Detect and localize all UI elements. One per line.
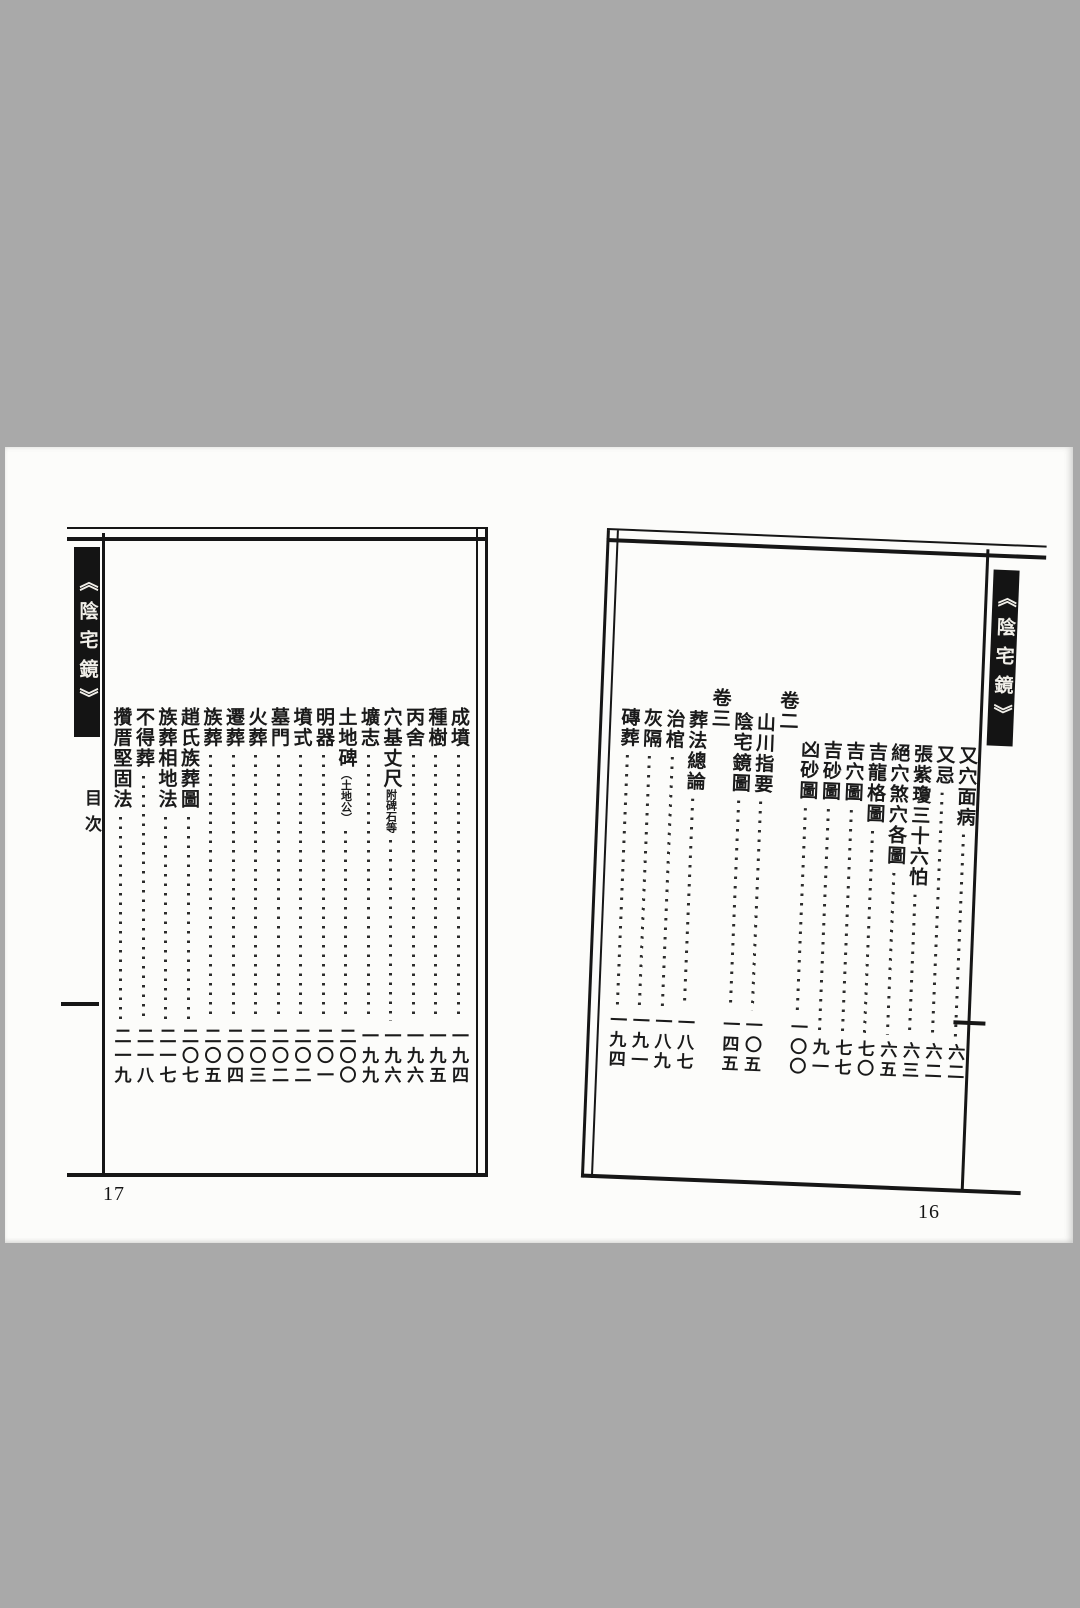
dotted-leader xyxy=(367,755,370,1021)
toc-entry-page: 二〇二 xyxy=(291,1027,311,1086)
toc-entry-page: 一九六 xyxy=(403,1027,423,1086)
toc-entry-title: 治棺 xyxy=(661,708,685,750)
toc-entry-title: 攢厝堅固法 xyxy=(110,707,132,810)
toc-entry-title: 山川指要 xyxy=(750,712,775,795)
toc-entry-title: 種樹 xyxy=(425,707,447,748)
toc-entry-page: 九一 xyxy=(808,1038,830,1078)
toc-entry-page: 二〇五 xyxy=(201,1027,221,1086)
toc-entry-page: 六二 xyxy=(943,1043,965,1083)
toc-entry-title: 明器 xyxy=(312,707,334,748)
toc-entry-page: 一九四 xyxy=(448,1027,468,1086)
toc-entry-page: 二一九 xyxy=(111,1027,131,1086)
toc-entry-page: 一九九 xyxy=(358,1027,378,1086)
dotted-leader xyxy=(638,756,651,1005)
toc-entry-note: 附碑石等 xyxy=(385,789,397,833)
dotted-leader xyxy=(728,800,739,1008)
toc-entry: 火葬二〇三 xyxy=(245,707,267,1085)
toc-entry-page: 二〇〇 xyxy=(336,1027,356,1086)
toc-entry-page: 二〇七 xyxy=(178,1027,198,1086)
toc-entry-title: 磚葬 xyxy=(616,707,640,749)
dotted-leader xyxy=(796,808,807,1012)
printed-page-number-right: 16 xyxy=(918,1201,940,1224)
page-frame-bottom-border xyxy=(67,1173,488,1177)
toc-entry: 族葬相地法二一七 xyxy=(155,707,177,1085)
dotted-leader xyxy=(142,776,145,1021)
toc-entry-page: 一九五 xyxy=(426,1027,446,1086)
toc-entry-title: 成墳 xyxy=(447,707,469,748)
book-title-strip: 《陰宅鏡》 xyxy=(987,570,1020,747)
toc-entry-title: 又忌 xyxy=(931,744,955,786)
book-title-strip: 《陰宅鏡》 xyxy=(74,547,100,737)
dotted-leader xyxy=(299,755,302,1021)
toc-entry: 遷葬二〇四 xyxy=(222,707,244,1085)
page-frame-top-border xyxy=(606,528,1046,560)
toc-entry-title: 卷二 xyxy=(775,690,799,732)
dotted-leader xyxy=(119,817,122,1021)
toc-entry-page: 六三 xyxy=(898,1041,920,1081)
toc-section-header: 卷二 xyxy=(775,690,799,732)
dotted-leader xyxy=(187,817,190,1021)
dotted-leader xyxy=(751,801,762,1009)
toc-entry-title: 趙氏族葬圖 xyxy=(177,707,199,810)
toc-entry-page: 一八七 xyxy=(672,1013,694,1072)
toc-entry-title: 墳式 xyxy=(290,707,312,748)
book-page-left: 《陰宅鏡》 目次 成墳一九四種樹一九五丙舍一九六穴基丈尺附碑石等一九六壙志一九九… xyxy=(67,527,488,1179)
toc-entry-page: 二〇三 xyxy=(246,1027,266,1086)
dotted-leader xyxy=(412,755,415,1021)
toc-entry-title: 土地碑（土地公） xyxy=(335,707,357,824)
dotted-leader xyxy=(615,755,628,1004)
toc-entry-title: 吉龍格圖 xyxy=(862,742,887,825)
toc-entry: 攢厝堅固法二一九 xyxy=(110,707,132,1085)
margin-notch xyxy=(61,1002,99,1006)
toc-entry: 族葬二〇五 xyxy=(200,707,222,1085)
toc-entry-page: 七七 xyxy=(830,1038,852,1078)
toc-entry-title: 墓門 xyxy=(267,707,289,748)
toc-entry-title: 族葬相地法 xyxy=(155,707,177,810)
dotted-leader xyxy=(164,817,167,1021)
toc-entry-title: 又穴面病 xyxy=(952,745,977,828)
page-frame-right-border xyxy=(476,529,488,1177)
toc-entry-page: 六五 xyxy=(875,1040,897,1080)
toc-entry-title: 灰隔 xyxy=(639,707,663,749)
dotted-leader xyxy=(683,799,694,1007)
toc-entry-page: 一四五 xyxy=(717,1014,739,1073)
toc-entry-page: 一九四 xyxy=(604,1010,626,1069)
toc-entry-page: 七〇 xyxy=(853,1039,875,1079)
toc-entry-title: 丙舍 xyxy=(402,707,424,748)
toc-entry-title: 凶砂圖 xyxy=(795,739,819,801)
page-frame-top-border xyxy=(67,527,488,541)
dotted-leader xyxy=(434,755,437,1021)
toc-entry-title: 壙志 xyxy=(357,707,379,748)
dotted-leader xyxy=(840,809,852,1032)
page-frame-inner-left-border xyxy=(102,533,105,1175)
dotted-leader xyxy=(254,755,257,1021)
toc-entry: 明器二〇一 xyxy=(312,707,334,1085)
toc-entry-title: 卷三 xyxy=(707,687,731,729)
toc-entry-note: （土地公） xyxy=(340,769,352,824)
dotted-leader xyxy=(457,755,460,1021)
toc-heading: 目次 xyxy=(79,789,104,841)
dotted-leader xyxy=(908,894,917,1036)
toc-entry-page: 二一八 xyxy=(133,1027,153,1086)
toc-entry-page: 一〇〇 xyxy=(785,1017,807,1076)
dotted-leader xyxy=(931,793,944,1037)
dotted-leader xyxy=(863,831,874,1034)
dotted-leader xyxy=(661,757,674,1006)
dotted-leader xyxy=(277,755,280,1021)
dotted-leader xyxy=(953,834,964,1037)
toc-entry-title: 穴基丈尺附碑石等 xyxy=(380,707,402,833)
toc-entry: 趙氏族葬圖二〇七 xyxy=(177,707,199,1085)
toc-entry-page: 一〇五 xyxy=(740,1015,762,1074)
toc-entry: 墳式二〇二 xyxy=(290,707,312,1085)
toc-entry-title: 族葬 xyxy=(200,707,222,748)
dotted-leader xyxy=(209,755,212,1021)
toc-entry-title: 火葬 xyxy=(245,707,267,748)
toc-entry: 墓門二〇二 xyxy=(267,707,289,1085)
toc-entry-title: 不得葬 xyxy=(132,707,154,769)
toc-entry: 壙志一九九 xyxy=(357,707,379,1085)
toc-entry: 不得葬二一八 xyxy=(132,707,154,1085)
toc-entry-page: 一八九 xyxy=(649,1012,671,1071)
toc-entry-title: 遷葬 xyxy=(222,707,244,748)
toc-entry-page: 二一七 xyxy=(156,1027,176,1086)
book-page-right: 《陰宅鏡》 又穴面病六二又忌六二張紫瓊三十六怕六三絕穴煞穴各圖六五吉龍格圖七〇吉… xyxy=(581,528,1047,1197)
dotted-leader xyxy=(886,873,895,1035)
dotted-leader xyxy=(344,831,347,1021)
toc-entry-title: 吉砂圖 xyxy=(818,740,842,802)
toc-entry-title: 吉穴圖 xyxy=(840,741,864,803)
printed-page-number-left: 17 xyxy=(103,1183,125,1206)
scanned-book-spread: 《陰宅鏡》 目次 成墳一九四種樹一九五丙舍一九六穴基丈尺附碑石等一九六壙志一九九… xyxy=(5,447,1073,1243)
toc-entry-page: 一九六 xyxy=(381,1027,401,1086)
toc-entry-page: 二〇四 xyxy=(223,1027,243,1086)
toc-entry: 種樹一九五 xyxy=(425,707,447,1085)
dotted-leader xyxy=(232,755,235,1021)
toc-entry-page: 二〇一 xyxy=(313,1027,333,1086)
dotted-leader xyxy=(389,840,392,1021)
dotted-leader xyxy=(322,755,325,1021)
toc-entry-page: 一九一 xyxy=(627,1011,649,1070)
page-frame-bottom-border xyxy=(581,1173,1021,1195)
toc-section-header: 卷三 xyxy=(707,687,731,729)
dotted-leader xyxy=(818,809,830,1032)
toc-entry-title: 陰宅鏡圖 xyxy=(727,711,752,794)
screenshot-root: { "colors": { "background": "#a9a9a9", "… xyxy=(0,0,1080,1608)
toc-entry-page: 二〇二 xyxy=(268,1027,288,1086)
toc-entry: 土地碑（土地公）二〇〇 xyxy=(335,707,357,1085)
toc-entry-title: 葬法總論 xyxy=(682,709,707,792)
toc-entry: 成墳一九四 xyxy=(447,707,469,1085)
toc-entry: 穴基丈尺附碑石等一九六 xyxy=(380,707,402,1085)
toc-entry-page: 六二 xyxy=(920,1042,942,1082)
toc-entry: 丙舍一九六 xyxy=(402,707,424,1085)
